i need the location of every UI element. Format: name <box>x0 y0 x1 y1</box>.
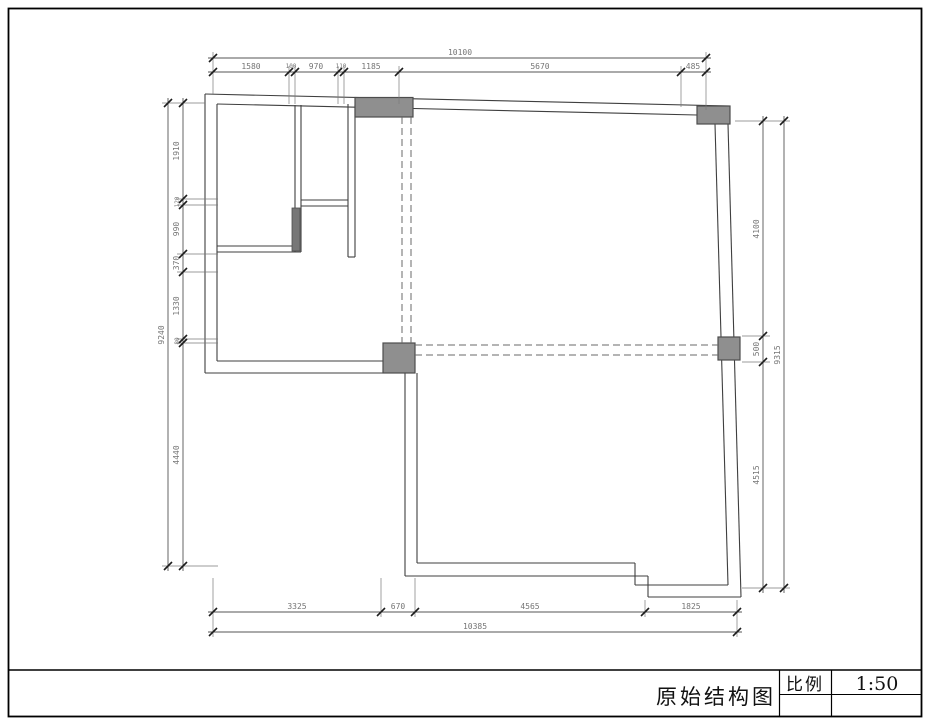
floor-plan-drawing: 10100 1580 100 970 110 1185 5670 485 332… <box>0 0 930 725</box>
scale-value: 1:50 <box>856 673 899 695</box>
dimension-label: 970 <box>309 62 324 71</box>
dimension-label: 1580 <box>241 62 260 71</box>
cad-sheet: 10100 1580 100 970 110 1185 5670 485 332… <box>0 0 930 725</box>
dimension-label: 5670 <box>530 62 549 71</box>
dimension-label: 1330 <box>172 296 181 315</box>
dimension-label: 990 <box>172 222 181 237</box>
dimension-top: 10100 1580 100 970 110 1185 5670 485 <box>208 48 711 110</box>
dimension-label: 500 <box>752 342 761 357</box>
dimension-label: 1185 <box>361 62 380 71</box>
dimension-label: 120 <box>174 196 181 207</box>
column-middle <box>383 343 415 373</box>
dimension-label: 485 <box>686 62 701 71</box>
dimension-label: 4440 <box>172 445 181 464</box>
column-top <box>355 98 413 118</box>
beam-dashed-lines <box>402 117 718 355</box>
dimension-right: 4100 500 4515 9315 <box>735 116 790 593</box>
dimension-label: 3325 <box>287 602 306 611</box>
dimension-label: 4565 <box>520 602 539 611</box>
column-top-right <box>697 106 730 124</box>
dimension-label: 9315 <box>773 345 782 364</box>
dimension-bottom: 3325 670 4565 1825 10385 <box>208 578 742 637</box>
dimension-label: 80 <box>174 337 181 345</box>
dimension-label: 10100 <box>448 48 472 57</box>
door-jamb <box>292 208 300 251</box>
scale-label: 比例 <box>786 675 824 694</box>
dimension-label: 670 <box>391 602 406 611</box>
dimension-label: 9240 <box>157 325 166 344</box>
dimension-left: 1910 120 990 370 1330 80 4440 9240 <box>157 98 218 571</box>
dimension-label: 10385 <box>463 622 487 631</box>
dimension-label: 110 <box>336 63 347 70</box>
drawing-title: 原始结构图 <box>656 686 776 709</box>
dimension-label: 4100 <box>752 219 761 238</box>
interior-walls <box>217 104 355 257</box>
dimension-label: 1910 <box>172 141 181 160</box>
dimension-label: 100 <box>286 63 297 70</box>
dimension-label: 4515 <box>752 465 761 484</box>
sheet-border <box>9 9 922 717</box>
dimension-label: 370 <box>172 256 181 271</box>
column-right <box>718 337 740 360</box>
title-block: 原始结构图 比例 1:50 <box>9 670 922 717</box>
dimension-label: 1825 <box>681 602 700 611</box>
structural-columns <box>355 98 740 374</box>
